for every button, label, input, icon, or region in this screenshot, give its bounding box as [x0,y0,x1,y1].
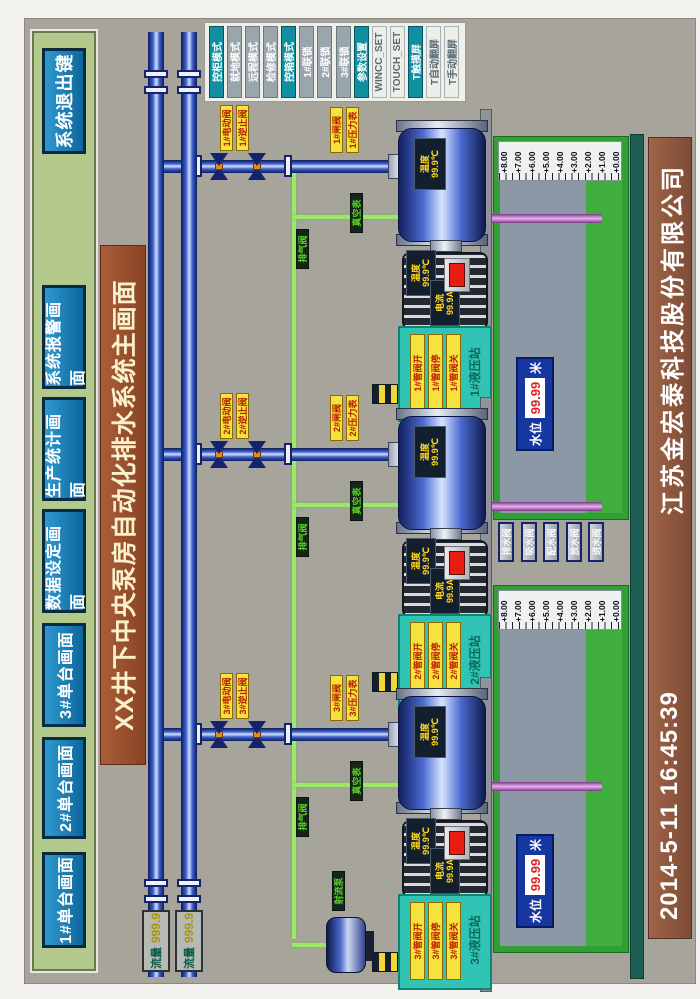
vacuum-pump-icon [372,952,398,972]
gate-valve-icon[interactable] [210,721,228,748]
valve-tag: 1#电动阀 [220,105,233,151]
nav-button-system-alarm[interactable]: 系统报警画面 [42,285,86,389]
gate-valve-icon[interactable] [248,153,266,180]
touch-screen-button[interactable]: T触摸屏 [408,26,423,98]
bottom-separator-stripe [630,134,644,979]
vacuum-drop-pipe [292,783,398,787]
mode-button-maintenance[interactable]: 检修模式 [263,26,278,98]
wincc-set-button[interactable]: WINCC_SET [372,26,387,98]
jet-pump-base [366,931,374,961]
pump-temp-readout: 温度99.9℃ [414,426,446,478]
valve-tag: 3#电动阀 [220,673,233,719]
flow-meter-readout: 流量999.9 [175,910,203,972]
flow-meter-readout: 流量999.9 [142,910,170,972]
run-status-lamp [444,826,470,860]
discharge-header-pipe-1 [148,32,164,977]
air-release-valve-tag: 排气阀 [296,797,309,837]
vacuum-gauge-tag: 真空表 [350,761,363,801]
valve-tag: 2#闸阀 [330,395,343,441]
nav-button-unit3[interactable]: 3#单台画面 [42,623,86,727]
valve-tag: 3#逆止阀 [236,673,249,719]
pipe-valve-stop-button[interactable]: 3#管阀停 [428,902,443,980]
mode-button-cabinet[interactable]: 控柜模式 [209,26,224,98]
header-flange [177,86,201,94]
pipe-flange [284,443,292,465]
gate-valve-icon[interactable] [248,721,266,748]
pipe-flange [284,723,292,745]
header-flange [177,879,201,887]
air-release-valve-tag: 排气阀 [296,517,309,557]
gauge-tag: 2#压力表 [346,395,359,441]
header-flange [177,70,201,78]
hydraulic-station-box: 3#管阀开 3#管阀停 3#管阀关 3#液压站 [398,894,492,990]
vacuum-gauge-tag: 真空表 [350,481,363,521]
header-flange [144,895,168,903]
jet-pump-icon [326,917,366,973]
gate-valve-icon[interactable] [210,153,228,180]
pump-temp-readout: 温度99.9℃ [414,706,446,758]
interlock-button-3[interactable]: 3#联锁 [336,26,351,98]
bottom-info-bar: 2014-5-11 16:45:39 江苏金宏泰科技股份有限公司 [648,137,692,939]
manual-page-flip-button[interactable]: T手动翻屏 [444,26,459,98]
nav-button-data-setting[interactable]: 数据设定画面 [42,509,86,613]
parameter-settings-button[interactable]: 参数设置 [354,26,369,98]
vacuum-gauge-tag: 真空表 [350,193,363,233]
pipe-flange [284,155,292,177]
nav-button-unit2[interactable]: 2#单台画面 [42,737,86,839]
auto-page-flip-button[interactable]: T自动翻屏 [426,26,441,98]
gauge-tag: 3#压力表 [346,675,359,721]
run-status-lamp [444,258,470,292]
gate-valve-icon[interactable] [210,441,228,468]
jet-pump-tag: 射流泵 [332,871,345,911]
air-release-valve-tag: 排气阀 [296,229,309,269]
header-flange [144,879,168,887]
datetime-display: 2014-5-11 16:45:39 [656,691,684,920]
interlock-button-1[interactable]: 1#联锁 [299,26,314,98]
company-name: 江苏金宏泰科技股份有限公司 [653,164,688,515]
mode-button-remote[interactable]: 远程模式 [245,26,260,98]
run-status-lamp [444,546,470,580]
valve-tag: 1#闸阀 [330,107,343,153]
vacuum-drop-pipe [292,215,398,219]
nav-button-system-exit[interactable]: 系统退出键 [42,48,86,154]
vacuum-drop-pipe [292,503,398,507]
discharge-header-pipe-2 [181,32,197,977]
rotated-screen-photo: +8.00 +7.00 +6.00 +5.00 +4.00 +3.00 +2.0… [0,0,700,999]
valve-tag: 1#逆止阀 [236,105,249,151]
pipe-valve-close-button[interactable]: 3#管阀关 [446,902,461,980]
header-flange [177,895,201,903]
valve-tag: 2#电动阀 [220,393,233,439]
header-flange [144,70,168,78]
hmi-landscape-canvas: +8.00 +7.00 +6.00 +5.00 +4.00 +3.00 +2.0… [0,0,700,999]
hydraulic-station-label: 3#液压站 [466,900,483,980]
touch-set-button[interactable]: TOUCH_SET [390,26,405,98]
header-flange [144,86,168,94]
interlock-button-2[interactable]: 2#联锁 [317,26,332,98]
gauge-tag: 1#压力表 [346,107,359,153]
valve-tag: 3#闸阀 [330,675,343,721]
page-title: XX井下中央泵房自动化排水系统主画面 [100,245,146,765]
gate-valve-icon[interactable] [248,441,266,468]
mode-button-box[interactable]: 控箱模式 [281,26,296,98]
valve-tag: 2#逆止阀 [236,393,249,439]
nav-button-unit1[interactable]: 1#单台画面 [42,852,86,948]
pipe-valve-open-button[interactable]: 3#管阀开 [410,902,425,980]
nav-button-production-stats[interactable]: 生产统计画面 [42,397,86,501]
mode-button-local[interactable]: 就地模式 [227,26,242,98]
pump-temp-readout: 温度99.9℃ [414,138,446,190]
